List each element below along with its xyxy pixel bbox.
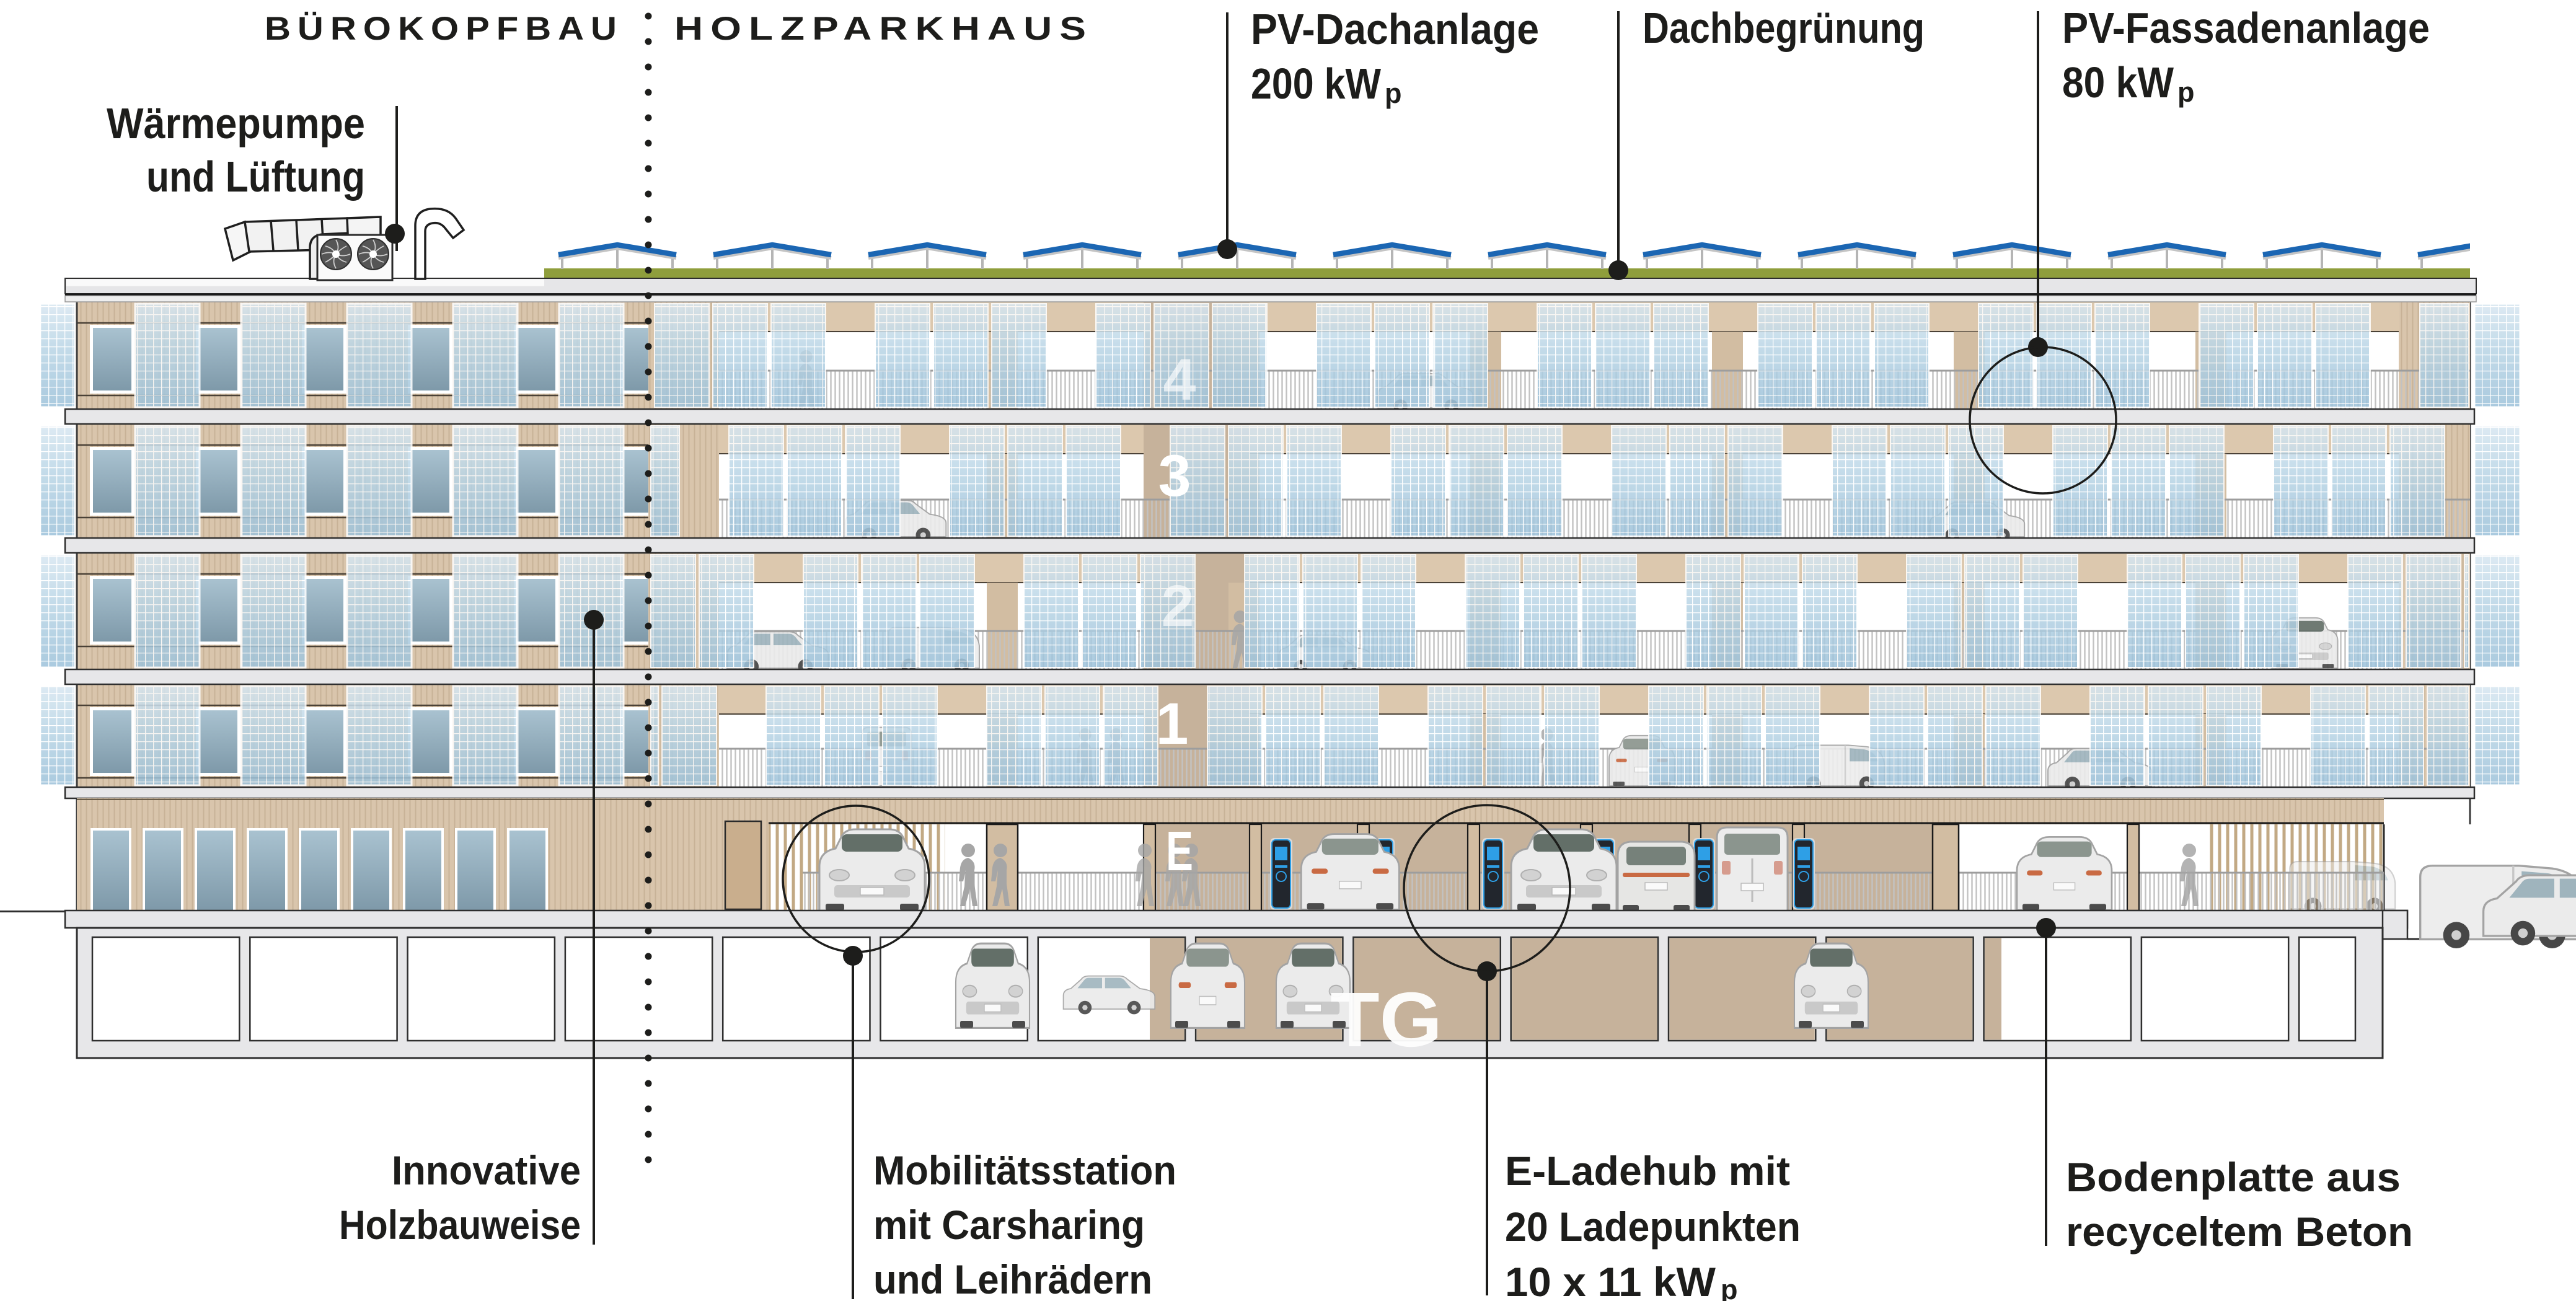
svg-text:mit Carsharing: mit Carsharing xyxy=(873,1202,1145,1248)
svg-text:und Leihrädern: und Leihrädern xyxy=(873,1256,1152,1301)
svg-text:E: E xyxy=(1166,821,1193,883)
svg-text:p: p xyxy=(1721,1274,1738,1301)
svg-text:BÜROKOPFBAU: BÜROKOPFBAU xyxy=(265,11,624,47)
svg-text:und Lüftung: und Lüftung xyxy=(146,152,365,201)
svg-text:Innovative: Innovative xyxy=(392,1147,581,1193)
svg-text:Wärmepumpe: Wärmepumpe xyxy=(107,99,365,148)
svg-text:E-Ladehub mit: E-Ladehub mit xyxy=(1505,1148,1790,1194)
svg-text:PV-Dachanlage: PV-Dachanlage xyxy=(1251,5,1539,53)
svg-text:80 kW: 80 kW xyxy=(2062,58,2174,107)
svg-text:HOLZPARKHAUS: HOLZPARKHAUS xyxy=(674,11,1093,47)
svg-text:10 x 11 kW: 10 x 11 kW xyxy=(1505,1259,1716,1301)
svg-text:2: 2 xyxy=(1162,573,1194,639)
svg-text:200 kW: 200 kW xyxy=(1251,60,1381,108)
svg-text:20 Ladepunkten: 20 Ladepunkten xyxy=(1505,1204,1801,1250)
svg-text:3: 3 xyxy=(1158,443,1191,509)
svg-text:p: p xyxy=(2177,76,2195,108)
svg-text:Holzbauweise: Holzbauweise xyxy=(339,1202,581,1248)
svg-text:TG: TG xyxy=(1330,977,1442,1063)
svg-text:recyceltem Beton: recyceltem Beton xyxy=(2066,1209,2413,1255)
svg-text:4: 4 xyxy=(1163,347,1196,413)
svg-text:PV-Fassadenanlage: PV-Fassadenanlage xyxy=(2062,4,2430,52)
svg-text:Mobilitätsstation: Mobilitätsstation xyxy=(873,1147,1176,1193)
svg-text:p: p xyxy=(1385,77,1402,109)
svg-text:Bodenplatte aus: Bodenplatte aus xyxy=(2066,1154,2401,1200)
svg-text:Dachbegrünung: Dachbegrünung xyxy=(1643,4,1925,52)
svg-text:1: 1 xyxy=(1156,691,1189,757)
